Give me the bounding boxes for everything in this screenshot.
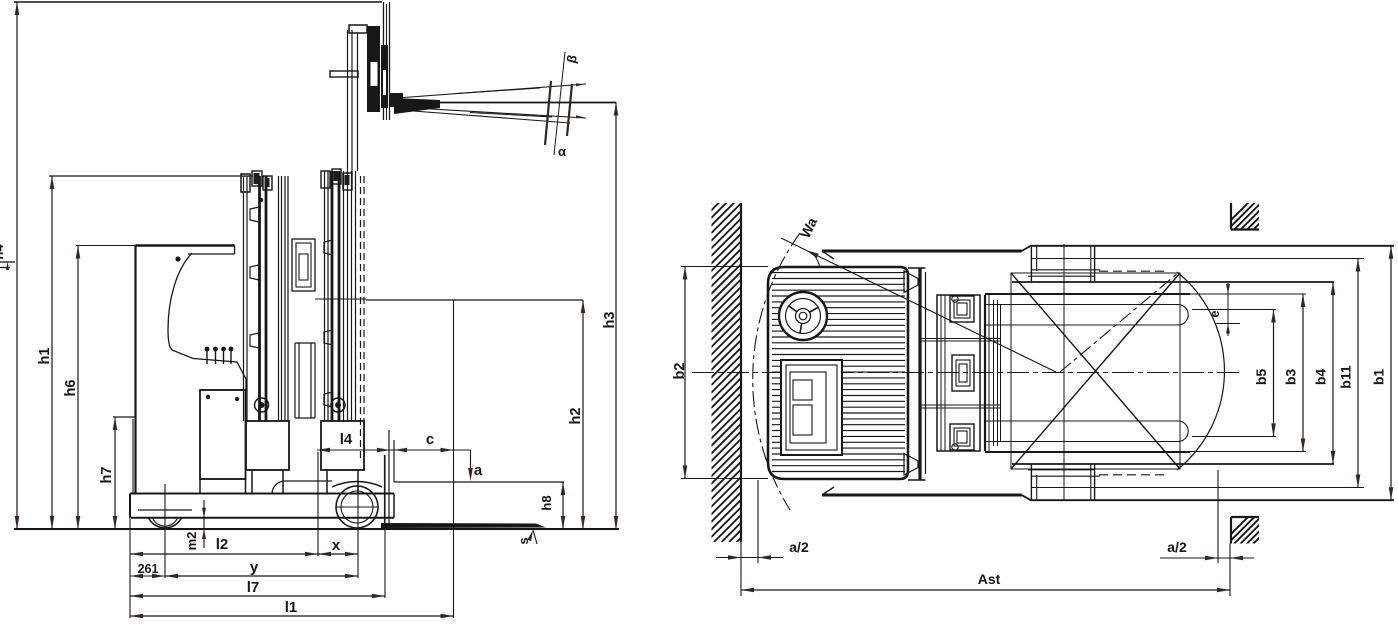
svg-text:x: x	[332, 537, 341, 554]
svg-text:b11: b11	[1338, 365, 1354, 389]
svg-text:h2: h2	[568, 408, 584, 425]
svg-text:a/2: a/2	[1167, 539, 1187, 555]
svg-text:a/2: a/2	[789, 539, 809, 555]
svg-text:b4: b4	[1313, 369, 1329, 386]
svg-text:y: y	[250, 559, 259, 576]
svg-text:b1: b1	[1371, 369, 1387, 386]
svg-text:b3: b3	[1283, 369, 1299, 386]
svg-text:b5: b5	[1253, 369, 1269, 386]
svg-text:l4: l4	[340, 431, 353, 448]
svg-text:m2: m2	[184, 532, 199, 551]
svg-text:h8: h8	[539, 495, 554, 510]
svg-text:l2: l2	[216, 536, 229, 553]
svg-text:Ast: Ast	[978, 571, 1001, 587]
svg-text:h1: h1	[37, 348, 53, 365]
svg-text:h7: h7	[99, 467, 115, 484]
svg-text:b2: b2	[672, 363, 688, 380]
svg-text:l7: l7	[247, 579, 260, 596]
svg-text:h3: h3	[602, 312, 618, 329]
svg-text:α: α	[558, 144, 566, 159]
svg-text:c: c	[426, 431, 434, 448]
svg-text:261: 261	[138, 562, 159, 576]
svg-text:s: s	[516, 537, 531, 544]
svg-text:h6: h6	[63, 380, 79, 397]
svg-text:a: a	[474, 462, 483, 479]
svg-text:l1: l1	[285, 599, 298, 616]
svg-text:h4: h4	[0, 244, 6, 260]
svg-text:e: e	[1207, 310, 1222, 317]
